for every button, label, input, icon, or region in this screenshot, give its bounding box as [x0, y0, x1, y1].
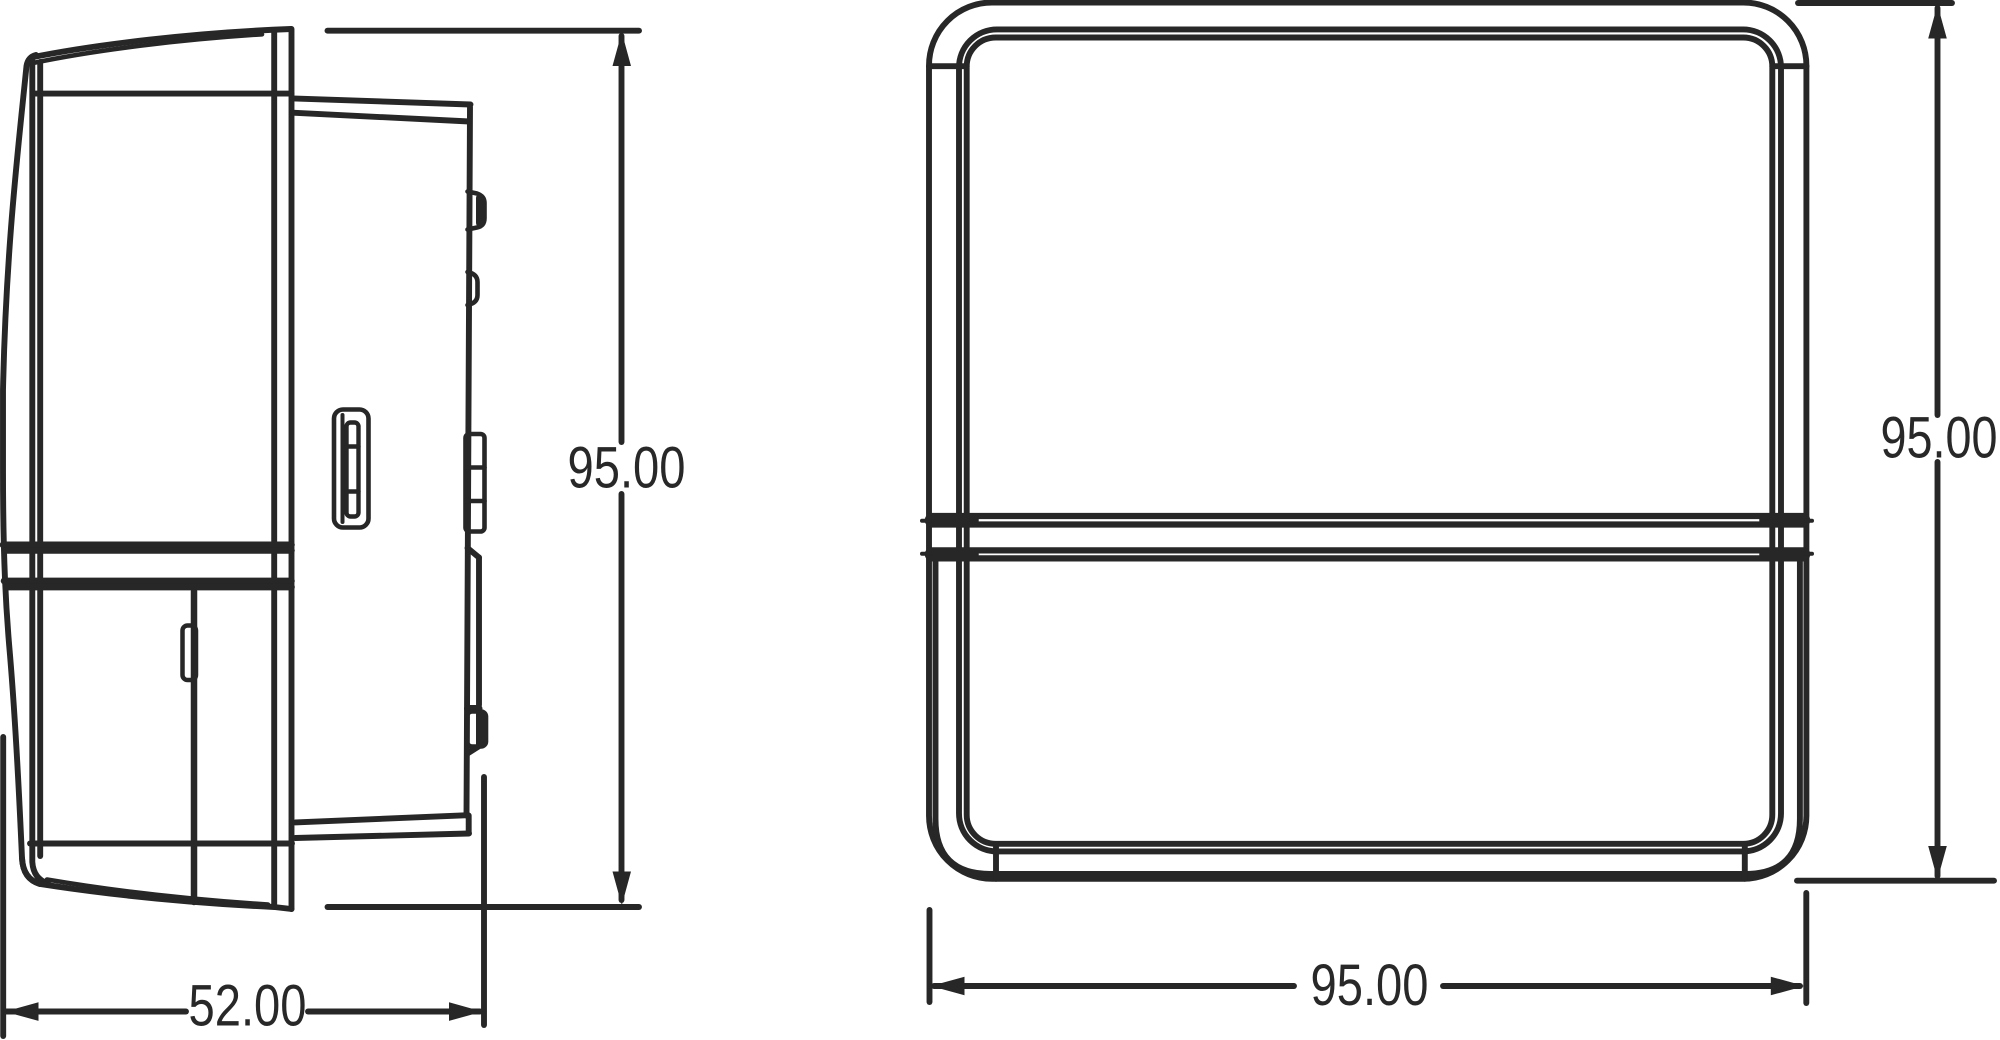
svg-text:95.00: 95.00 — [1311, 953, 1429, 1018]
svg-text:52.00: 52.00 — [189, 974, 307, 1039]
svg-text:95.00: 95.00 — [1881, 406, 1998, 471]
svg-text:95.00: 95.00 — [568, 436, 686, 501]
